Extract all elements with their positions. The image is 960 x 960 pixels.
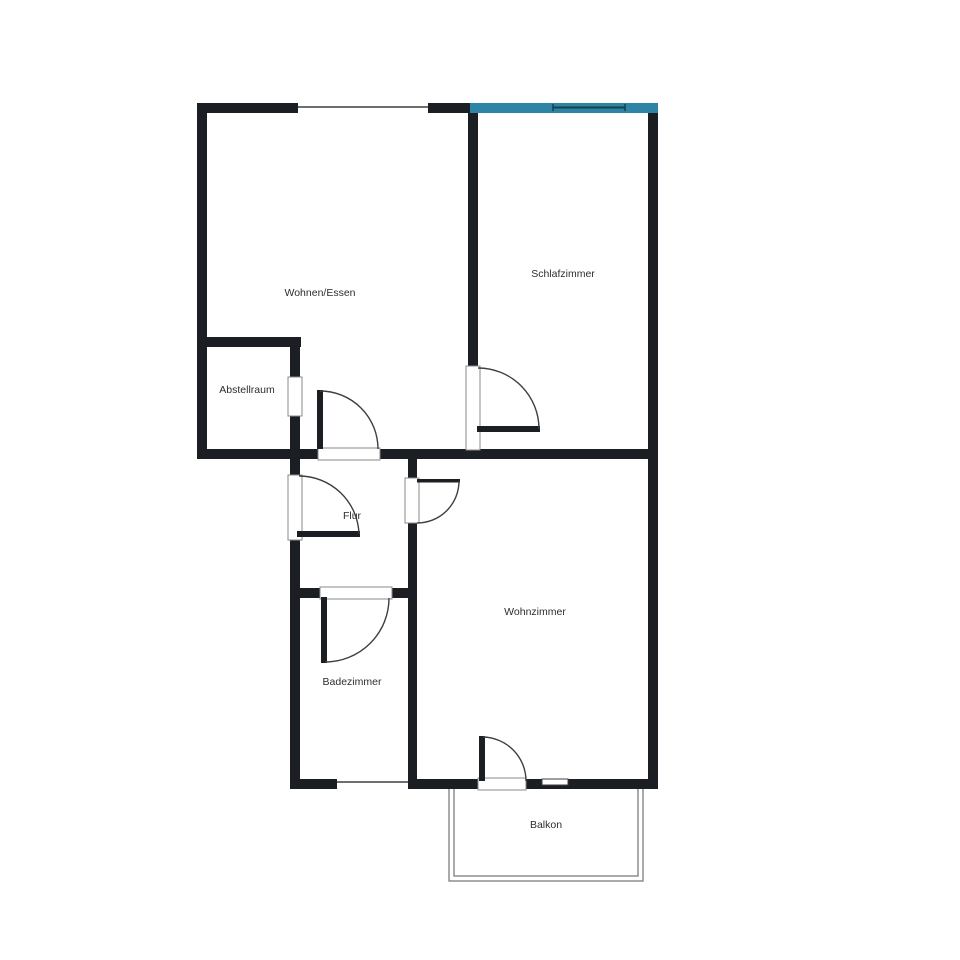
schlafzimmer-door-threshold [466,366,480,450]
wohnen-essen-door-threshold [318,448,380,460]
door-leaf [297,531,360,537]
door-swing-arc [478,368,539,429]
wohnzimmer-small-window [542,779,568,785]
wohnen-essen-door [317,390,378,449]
door-leaf [317,390,323,449]
room-label-wohnen-essen: Wohnen/Essen [284,287,355,299]
balkon-door [479,736,526,781]
wohnzimmer-door-threshold [405,478,419,523]
room-label-abstellraum: Abstellraum [219,384,275,396]
door-swing-arc [325,598,389,662]
door-swing-arc [299,476,359,534]
door-swing-arc [320,391,378,449]
badezimmer-bottom-wall [290,779,337,789]
walls [197,103,658,789]
room-label-schlafzimmer: Schlafzimmer [531,268,595,280]
room-label-flur: Flur [343,510,362,522]
badezimmer-door-threshold [320,587,392,599]
left-exterior-wall [197,103,207,459]
abstellraum-top-wall [197,337,301,347]
entrance-door [297,476,360,537]
door-swing-arc [417,481,459,523]
abstellraum-opening [288,377,302,416]
door-leaf [479,736,485,781]
room-label-balkon: Balkon [530,819,562,831]
entrance-door-threshold [288,475,302,540]
wohnzimmer-door [417,479,460,523]
floor-plan: Wohnen/Essen Schlafzimmer Abstellraum Fl… [0,0,960,960]
door-leaf [321,597,327,663]
floor-plan-page: Wohnen/Essen Schlafzimmer Abstellraum Fl… [0,0,960,960]
badezimmer-door [321,597,389,663]
balcony-outer-rail [449,785,643,881]
door-leaf [417,479,460,483]
balcony-outline [449,785,643,881]
door-leaf [477,426,540,432]
room-label-badezimmer: Badezimmer [323,676,382,688]
room-label-wohnzimmer: Wohnzimmer [504,606,566,618]
wohnzimmer-bottom-wall [408,779,658,789]
right-exterior-wall [648,103,658,789]
schlafzimmer-window-highlighted [470,103,658,113]
balkon-door-threshold [478,778,526,790]
schlafzimmer-door [477,368,540,432]
room-labels: Wohnen/Essen Schlafzimmer Abstellraum Fl… [219,268,595,831]
middle-spine-wall [197,449,658,459]
door-swing-arc [483,737,526,781]
top-wall-left [197,103,298,113]
